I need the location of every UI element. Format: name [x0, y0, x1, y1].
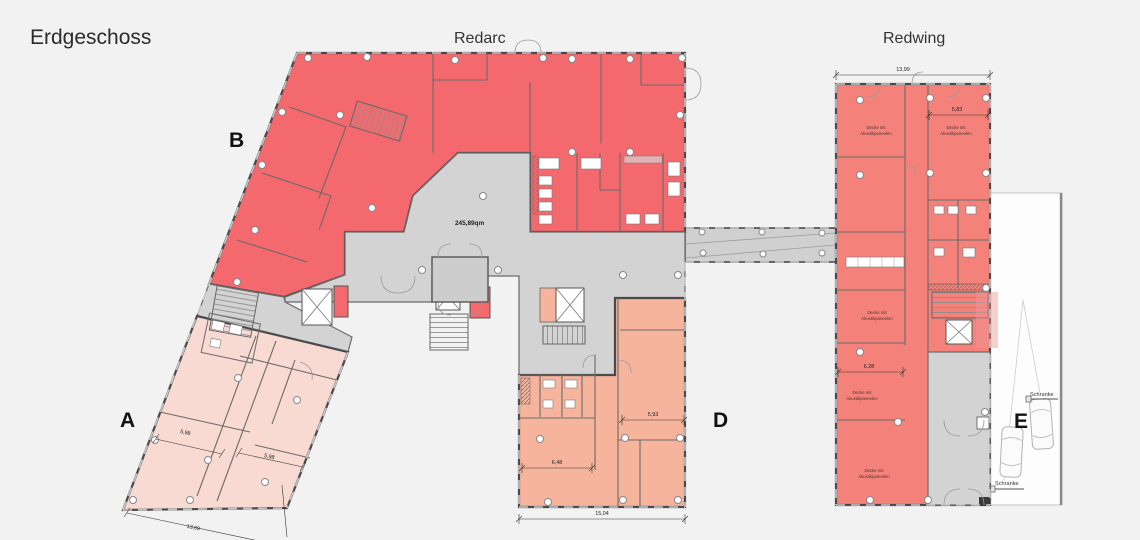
redwing-building: [836, 72, 998, 506]
car: [1029, 398, 1053, 449]
svg-text:Decke mit: Decke mit: [852, 390, 872, 395]
kitchenette: [846, 257, 904, 267]
dim-redwing-room-top: 5,83: [952, 107, 963, 113]
svg-text:Akustikpaneelen: Akustikpaneelen: [940, 131, 972, 136]
section-label-e: E: [1014, 410, 1028, 433]
svg-text:Decke mit: Decke mit: [867, 310, 887, 315]
stairs-d-wing: [540, 288, 585, 344]
svg-text:Decke mit: Decke mit: [864, 468, 884, 473]
dim-d-room-right: 5,93: [648, 412, 659, 418]
hall-area-label: 245,89qm: [455, 220, 484, 227]
section-label-d: D: [713, 409, 728, 432]
floor-plan: Schranke Schranke: [0, 0, 1140, 540]
hatched-wall: [928, 284, 990, 290]
barrier-label-bottom: Schranke: [995, 481, 1019, 487]
car: [1000, 427, 1024, 478]
svg-text:Akustikpaneelen: Akustikpaneelen: [846, 396, 878, 401]
red-shaft: [334, 286, 348, 317]
svg-text:Decke mit: Decke mit: [946, 125, 966, 130]
svg-text:Decke mit: Decke mit: [866, 125, 886, 130]
dim-d-width: 15,04: [595, 511, 609, 517]
page-title: Erdgeschoss: [30, 26, 151, 49]
dim-redwing-room-mid: 6,28: [864, 364, 875, 370]
parking-area: Schranke Schranke: [990, 193, 1062, 505]
svg-text:Akustikpaneelen: Akustikpaneelen: [858, 474, 890, 479]
svg-text:Akustikpaneelen: Akustikpaneelen: [861, 316, 893, 321]
pink-overlay: [976, 292, 998, 348]
dim-d-room-left: 6,48: [552, 460, 563, 466]
section-label-b: B: [229, 129, 244, 152]
building-label-redarc: Redarc: [454, 30, 506, 47]
section-label-a: A: [120, 409, 135, 432]
barrier-label-top: Schranke: [1030, 392, 1054, 398]
svg-text:Akustikpaneelen: Akustikpaneelen: [860, 131, 892, 136]
building-label-redwing: Redwing: [883, 30, 945, 47]
dim-redwing-width: 13,99: [896, 67, 910, 73]
